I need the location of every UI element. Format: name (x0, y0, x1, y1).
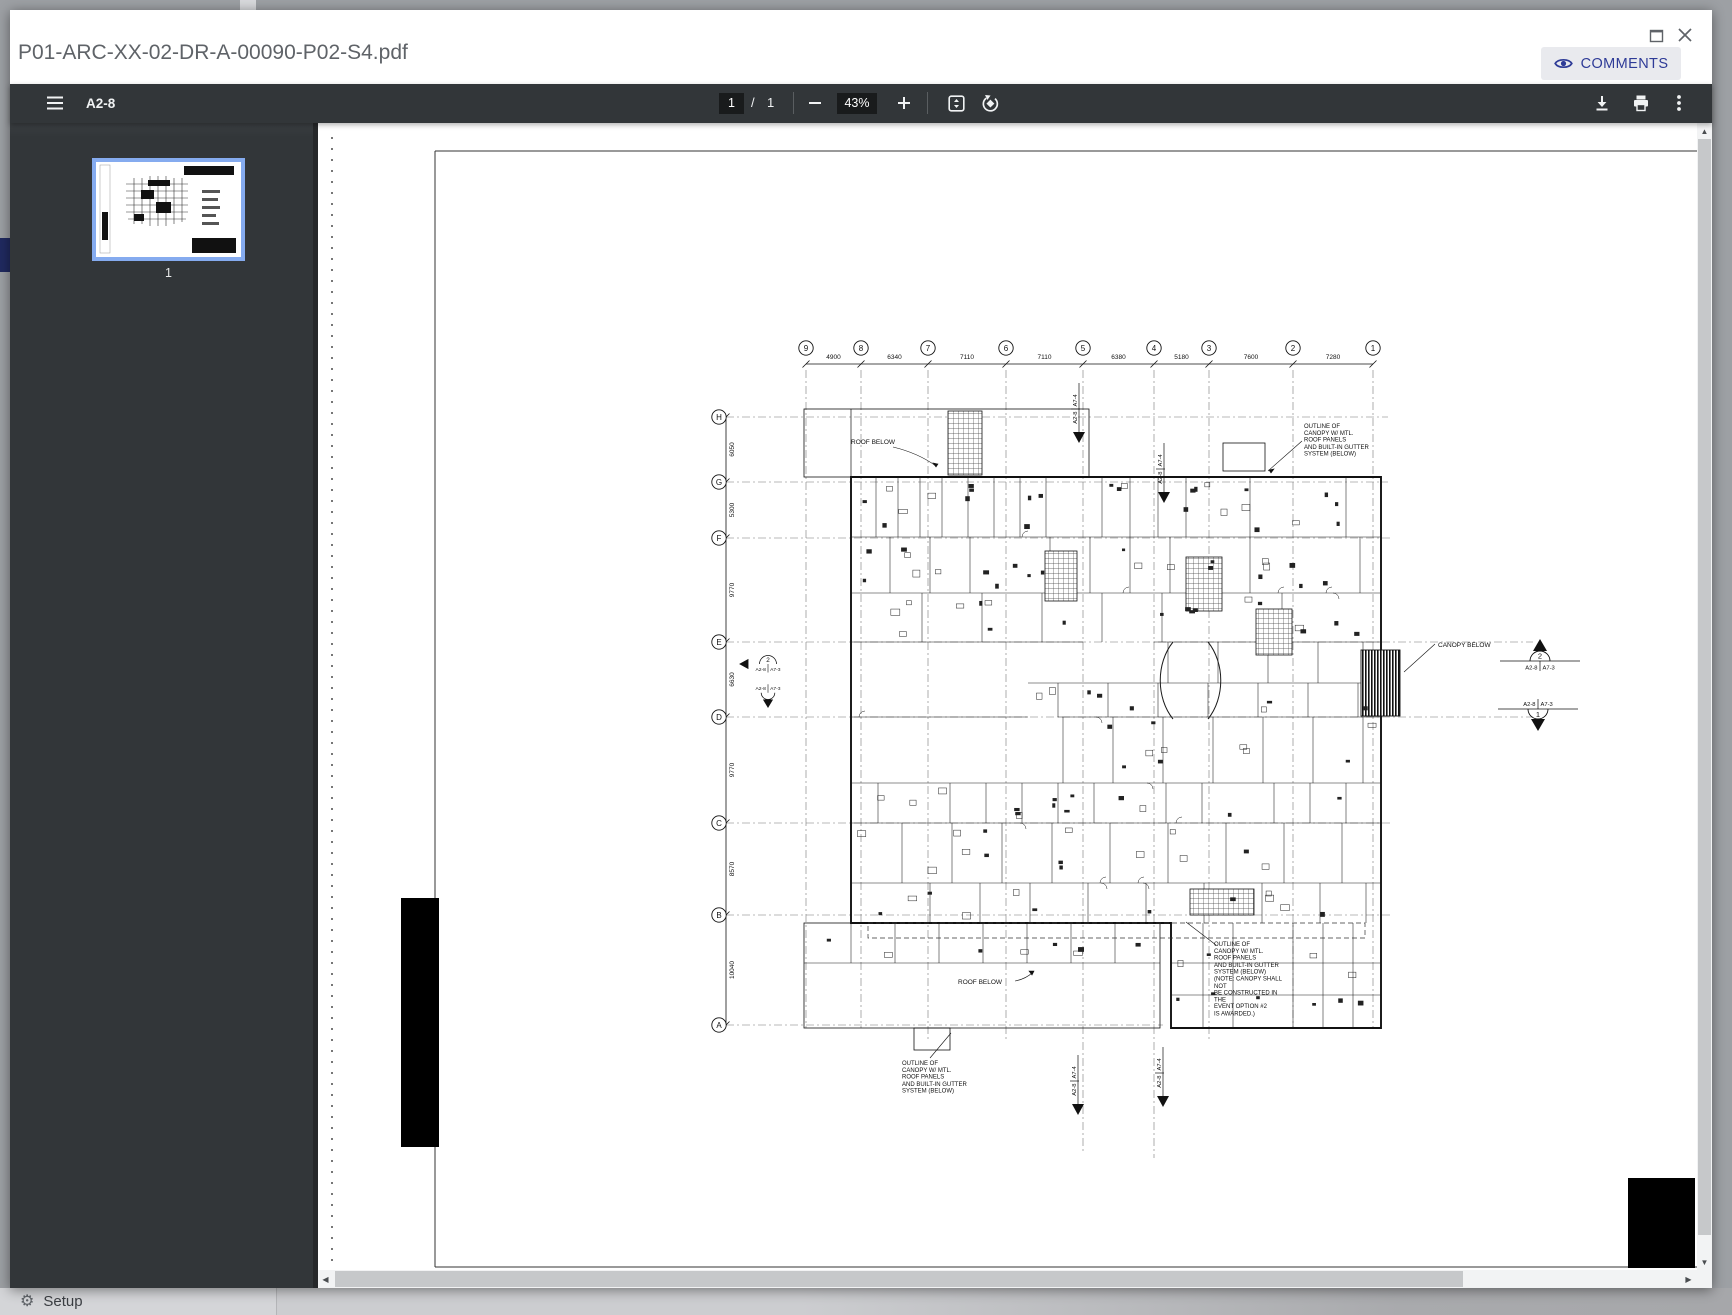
svg-text:6050: 6050 (729, 442, 736, 457)
svg-text:9770: 9770 (729, 762, 736, 777)
page-total: 1 (767, 95, 774, 110)
svg-text:7: 7 (926, 344, 931, 353)
pdf-preview-window: P01-ARC-XX-02-DR-A-00090-P02-S4.pdf COMM… (10, 10, 1712, 1288)
maximize-icon[interactable] (1649, 29, 1665, 45)
svg-text:C: C (716, 819, 722, 828)
svg-text:5: 5 (1081, 344, 1086, 353)
more-options-icon[interactable] (1676, 94, 1682, 115)
svg-text:6380: 6380 (1111, 354, 1126, 361)
svg-text:1: 1 (1536, 710, 1540, 719)
svg-text:A7-4: A7-4 (1073, 393, 1079, 406)
scroll-up-icon[interactable]: ▲ (1697, 123, 1712, 139)
toolbar-divider (927, 92, 928, 114)
svg-text:2: 2 (766, 657, 770, 664)
zoom-in-icon[interactable] (896, 95, 912, 114)
horizontal-scrollbar-thumb[interactable] (335, 1271, 1463, 1287)
page-number-input[interactable]: 1 (719, 93, 744, 114)
svg-text:6340: 6340 (887, 354, 902, 361)
page-separator: / (751, 95, 755, 110)
roof-below-label-upper: ROOF BELOW (851, 439, 896, 446)
svg-text:A7-3: A7-3 (770, 686, 781, 692)
scroll-right-icon[interactable]: ▶ (1681, 1271, 1696, 1287)
svg-text:7110: 7110 (960, 354, 974, 361)
roof-below-label-lower: ROOF BELOW (958, 979, 1003, 986)
svg-text:5180: 5180 (1174, 354, 1189, 361)
sheet-code: A2-8 (86, 96, 115, 111)
scroll-down-icon[interactable]: ▼ (1697, 1254, 1712, 1270)
svg-text:3: 3 (1207, 344, 1212, 353)
vertical-scrollbar[interactable]: ▲ ▼ (1697, 123, 1712, 1270)
document-title: P01-ARC-XX-02-DR-A-00090-P02-S4.pdf (18, 41, 408, 65)
svg-text:A2-8: A2-8 (1073, 412, 1079, 424)
svg-text:A2-8: A2-8 (1072, 1084, 1078, 1096)
svg-text:A7-4: A7-4 (1072, 1065, 1078, 1078)
section-marker: 2 A2-8 A7-3 (1500, 639, 1580, 672)
svg-text:A2-8: A2-8 (1158, 472, 1164, 484)
note-top-right: OUTLINE OF CANOPY W/ MTL. ROOF PANELS AN… (1304, 423, 1376, 458)
download-icon[interactable] (1593, 94, 1611, 115)
svg-text:A: A (716, 1021, 722, 1030)
zoom-level-input[interactable]: 43% (837, 93, 877, 114)
svg-text:A2-8: A2-8 (755, 667, 766, 673)
grid-lines: 9876543214900634071107110638051807600728… (712, 341, 1533, 1158)
plan-geometry (804, 409, 1400, 1050)
svg-text:7280: 7280 (1326, 354, 1341, 361)
svg-text:E: E (716, 638, 721, 647)
svg-text:A2-8: A2-8 (755, 686, 766, 692)
section-marker: A2-8 A7-3 (755, 684, 780, 708)
print-icon[interactable] (1632, 94, 1650, 115)
canopy-below-label: CANOPY BELOW (1438, 642, 1491, 649)
status-bar: ⚙ Setup (0, 1288, 1732, 1315)
svg-text:A7-3: A7-3 (770, 667, 781, 673)
vertical-scrollbar-thumb[interactable] (1698, 139, 1711, 1235)
page-backdrop (0, 0, 1732, 10)
thumbnail-page-number: 1 (92, 266, 245, 280)
note-bottom-center: OUTLINE OF CANOPY W/ MTL. ROOF PANELS AN… (902, 1060, 974, 1095)
svg-text:8570: 8570 (729, 861, 736, 876)
svg-text:2: 2 (1538, 652, 1542, 661)
svg-text:9: 9 (804, 344, 809, 353)
section-marker: A2-8 A7-4 (1155, 1047, 1169, 1107)
note-bottom-right: OUTLINE OF CANOPY W/ MTL. ROOF PANELS AN… (1214, 941, 1286, 1018)
svg-text:A2-8: A2-8 (1523, 702, 1535, 708)
svg-text:A7-3: A7-3 (1541, 702, 1553, 708)
svg-text:1: 1 (1371, 344, 1376, 353)
sheet-black-bar (401, 898, 439, 1147)
section-marker: 2 A2-8 A7-3 (739, 656, 781, 674)
page-thumbnail[interactable] (92, 158, 245, 261)
section-marker: 1 A2-8 A7-3 (1498, 699, 1578, 731)
toolbar-divider (793, 92, 794, 114)
svg-text:7600: 7600 (1244, 354, 1259, 361)
menu-icon[interactable] (46, 95, 64, 114)
pdf-toolbar: A2-8 1 / 1 43% (10, 84, 1712, 123)
rotate-icon[interactable] (981, 94, 1000, 116)
svg-text:A7-4: A7-4 (1158, 453, 1164, 466)
backdrop-tab (240, 0, 256, 10)
svg-text:A2-8: A2-8 (1157, 1076, 1163, 1088)
leader-lines (893, 441, 1435, 1058)
svg-text:8: 8 (859, 344, 864, 353)
horizontal-scrollbar[interactable]: ◀ ▶ (318, 1270, 1697, 1288)
section-marker: A2-8 A7-4 (1070, 1055, 1084, 1115)
scroll-left-icon[interactable]: ◀ (318, 1271, 333, 1287)
svg-text:10040: 10040 (729, 961, 736, 979)
sheet-title-block (1628, 1178, 1695, 1268)
fit-page-icon[interactable] (948, 95, 965, 115)
gear-icon: ⚙ (20, 1294, 34, 1310)
setup-label: Setup (43, 1293, 82, 1310)
svg-text:7110: 7110 (1038, 354, 1052, 361)
window-header: P01-ARC-XX-02-DR-A-00090-P02-S4.pdf COMM… (10, 10, 1712, 84)
svg-text:A7-4: A7-4 (1157, 1057, 1163, 1070)
pdf-page-view: 9876543214900634071107110638051807600728… (318, 123, 1697, 1270)
eye-icon (1554, 57, 1573, 70)
svg-text:6630: 6630 (729, 672, 736, 687)
svg-text:H: H (716, 413, 722, 422)
svg-text:B: B (716, 911, 721, 920)
svg-text:D: D (716, 713, 722, 722)
svg-text:A7-3: A7-3 (1543, 666, 1555, 672)
svg-text:G: G (716, 478, 722, 487)
svg-text:2: 2 (1291, 344, 1296, 353)
svg-text:6: 6 (1004, 344, 1009, 353)
close-icon[interactable] (1677, 27, 1693, 43)
svg-text:F: F (717, 534, 722, 543)
setup-button[interactable]: ⚙ Setup (0, 1288, 277, 1315)
thumbnail-preview (96, 162, 241, 257)
comments-button[interactable]: COMMENTS (1541, 47, 1681, 80)
comments-label: COMMENTS (1581, 56, 1669, 72)
svg-text:4: 4 (1152, 344, 1157, 353)
svg-text:A2-8: A2-8 (1525, 666, 1537, 672)
thumbnail-sidebar (10, 123, 313, 1288)
zoom-out-icon[interactable] (807, 95, 823, 114)
scrollbar-corner (1697, 1270, 1712, 1288)
svg-text:4900: 4900 (826, 354, 841, 361)
floor-plan-drawing: 9876543214900634071107110638051807600728… (318, 123, 1697, 1270)
svg-text:9770: 9770 (729, 582, 736, 597)
nav-selected-indicator (0, 238, 10, 272)
svg-text:5300: 5300 (729, 502, 736, 517)
